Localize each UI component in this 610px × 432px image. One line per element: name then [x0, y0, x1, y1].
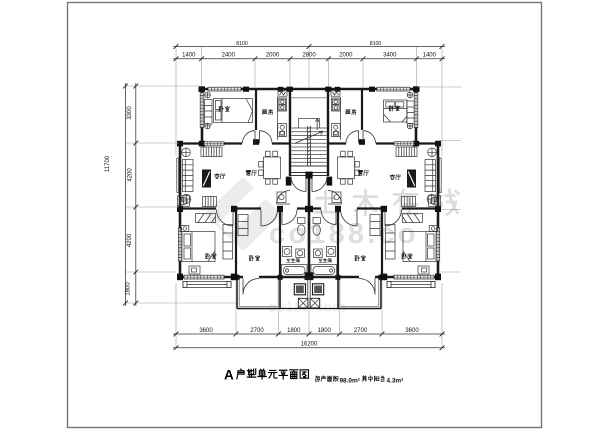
svg-text:1400: 1400 [423, 53, 437, 59]
svg-text:2800: 2800 [302, 53, 316, 59]
svg-text:2000: 2000 [266, 53, 280, 59]
svg-text:16200: 16200 [301, 342, 318, 348]
svg-text:1800: 1800 [126, 282, 132, 296]
svg-text:2700: 2700 [250, 328, 264, 334]
svg-text:1400: 1400 [182, 53, 196, 59]
svg-text:3600: 3600 [199, 328, 213, 334]
svg-text:8100: 8100 [236, 41, 248, 47]
svg-text:8100: 8100 [370, 41, 382, 47]
svg-text:11700: 11700 [105, 155, 111, 172]
svg-text:co188.co: co188.co [269, 218, 419, 250]
svg-text:2400: 2400 [222, 53, 236, 59]
svg-text:1800: 1800 [287, 328, 301, 334]
svg-text:4200: 4200 [128, 168, 134, 182]
svg-text:4.3m²: 4.3m² [387, 377, 404, 384]
svg-text:3300: 3300 [127, 106, 133, 120]
svg-text:A: A [224, 368, 234, 383]
svg-text:3600: 3600 [405, 328, 419, 334]
svg-text:4200: 4200 [127, 233, 133, 247]
svg-text:2700: 2700 [354, 328, 368, 334]
svg-text:2000: 2000 [339, 53, 353, 59]
svg-text:1800: 1800 [318, 328, 332, 334]
svg-text:98.0m²: 98.0m² [340, 377, 360, 384]
svg-text:3400: 3400 [383, 53, 397, 59]
